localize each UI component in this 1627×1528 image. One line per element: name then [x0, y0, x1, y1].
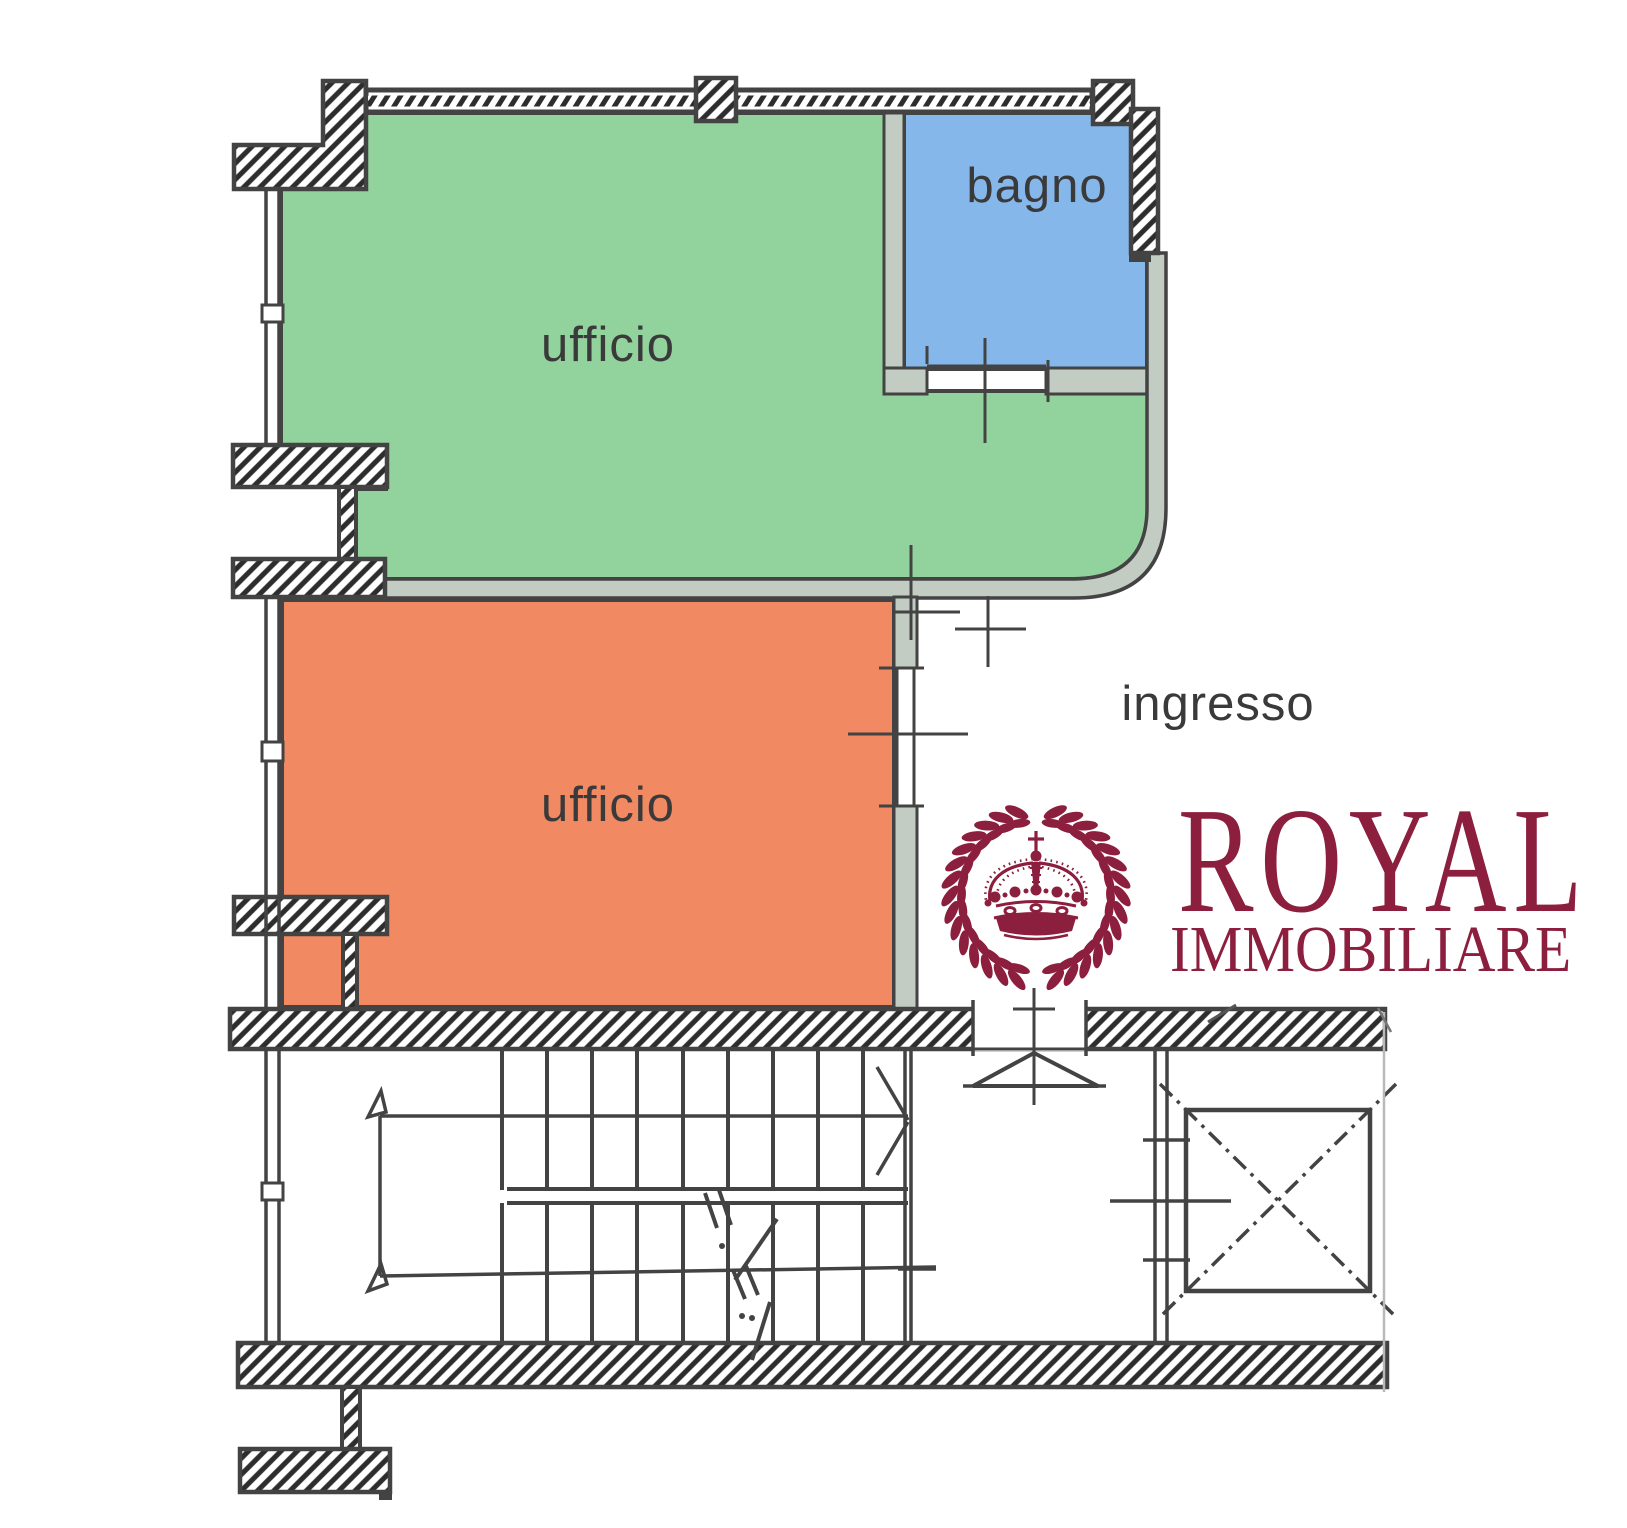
svg-text:ufficio: ufficio — [541, 778, 675, 832]
svg-text:IMMOBILIARE: IMMOBILIARE — [1170, 912, 1571, 986]
svg-text:bagno: bagno — [966, 159, 1107, 213]
svg-text:ingresso: ingresso — [1121, 677, 1314, 731]
svg-text:ufficio: ufficio — [541, 318, 675, 372]
